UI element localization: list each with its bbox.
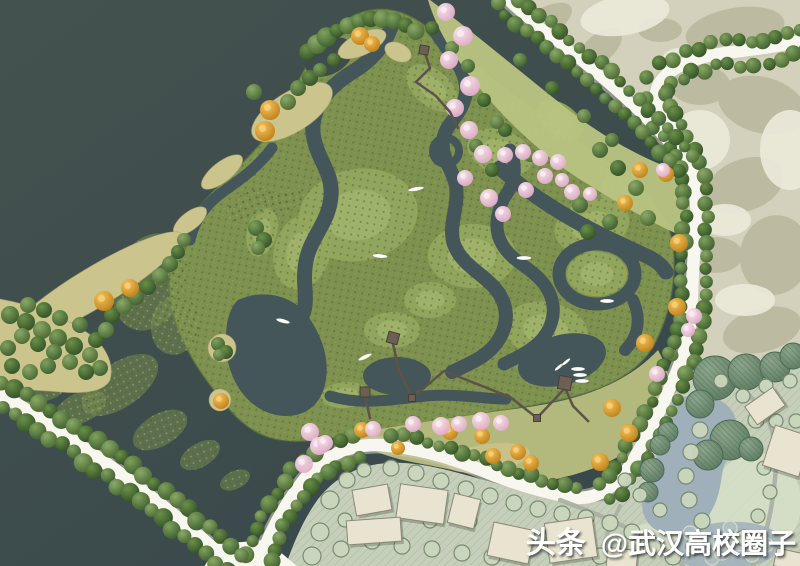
cherry-tree	[476, 416, 482, 422]
street-tree	[697, 196, 712, 211]
street-tree	[680, 210, 693, 223]
island-tree	[14, 328, 30, 344]
street-tree	[41, 431, 58, 448]
street-tree	[340, 456, 356, 472]
cherry-tree	[684, 326, 689, 331]
autumn-tree	[617, 195, 633, 211]
street-tree	[499, 10, 510, 21]
street-tree	[581, 49, 597, 65]
cherry-tree	[457, 170, 473, 186]
autumn-tree	[94, 291, 114, 311]
cherry-tree	[493, 415, 509, 431]
street-tree	[590, 83, 602, 95]
street-tree	[260, 495, 278, 513]
cherry-tree	[532, 150, 548, 166]
autumn-tree	[264, 104, 271, 111]
island-tree	[327, 53, 341, 67]
street-tree	[531, 8, 547, 24]
island-tree	[213, 349, 225, 361]
cherry-tree	[444, 55, 450, 61]
cherry-tree	[496, 418, 502, 424]
street-tree	[409, 430, 424, 445]
autumn-tree	[620, 424, 638, 442]
building-roof	[395, 484, 450, 528]
street-tree	[623, 85, 635, 97]
island-tree	[545, 81, 559, 95]
autumn-tree	[513, 447, 519, 453]
street-tree	[675, 262, 687, 274]
mottle-patch	[715, 284, 775, 316]
cherry-tree	[681, 323, 695, 337]
watermark-handle: @武汉高校圈子	[601, 527, 796, 559]
autumn-tree	[668, 298, 686, 316]
island-tree	[17, 313, 35, 331]
street-tree	[547, 478, 559, 490]
island-tree	[1, 306, 19, 324]
village-tree	[303, 547, 321, 565]
cherry-tree	[553, 157, 559, 163]
autumn-tree	[672, 302, 678, 308]
island-tree	[65, 337, 83, 355]
autumn-tree	[485, 448, 501, 464]
street-tree	[674, 274, 688, 288]
viewing-platform	[360, 387, 370, 397]
island-tree	[577, 109, 591, 123]
street-tree	[272, 531, 286, 545]
cherry-tree	[567, 187, 573, 193]
island-tree	[40, 358, 56, 374]
street-tree	[407, 23, 424, 40]
cherry-tree	[583, 187, 597, 201]
map-canvas: 头条 @武汉高校圈子	[0, 0, 800, 566]
village-tree	[678, 468, 694, 484]
island-tree	[22, 364, 38, 380]
street-tree	[255, 510, 267, 522]
boat	[573, 373, 587, 377]
street-tree	[234, 548, 249, 563]
cherry-tree	[498, 209, 504, 215]
village-tree	[482, 488, 498, 504]
island-tree	[140, 279, 156, 295]
cherry-tree	[652, 369, 658, 375]
island-tree	[580, 224, 596, 240]
street-tree	[676, 196, 690, 210]
viewing-platform	[419, 45, 429, 55]
village-tree	[653, 503, 667, 517]
autumn-tree	[632, 162, 648, 178]
island-tree	[20, 297, 36, 313]
autumn-tree	[523, 455, 539, 471]
viewing-platform	[386, 331, 399, 344]
street-tree	[672, 394, 684, 406]
village-tree	[789, 414, 800, 428]
village-tree	[357, 463, 371, 477]
autumn-tree	[636, 334, 654, 352]
autumn-tree	[510, 444, 526, 460]
island-tree	[62, 354, 78, 370]
village-tree	[433, 473, 449, 489]
cherry-tree	[460, 173, 466, 179]
village-tree	[763, 485, 777, 499]
cherry-tree	[537, 168, 553, 184]
autumn-tree	[364, 36, 380, 52]
village-tree	[339, 472, 355, 488]
cherry-tree	[464, 80, 471, 87]
shrub-mass	[739, 437, 763, 461]
cherry-tree	[474, 145, 492, 163]
street-tree	[700, 250, 713, 263]
village-tree	[618, 473, 632, 487]
street-tree	[746, 36, 758, 48]
village-tree	[321, 491, 339, 509]
island-tree	[4, 358, 20, 374]
street-tree	[557, 477, 573, 493]
street-tree	[277, 474, 294, 491]
street-tree	[734, 61, 747, 74]
street-tree	[781, 26, 795, 40]
island-tree	[246, 84, 262, 100]
street-tree	[444, 441, 458, 455]
channel	[330, 395, 506, 401]
street-tree	[614, 76, 625, 87]
shrub-mass	[640, 458, 664, 482]
autumn-tree	[125, 283, 131, 289]
autumn-tree	[607, 403, 613, 409]
street-tree	[697, 223, 712, 238]
cherry-tree	[558, 176, 563, 181]
cherry-tree	[497, 147, 513, 163]
street-tree	[648, 381, 663, 396]
autumn-tree	[391, 441, 405, 455]
cherry-tree	[480, 189, 498, 207]
island-tree	[72, 317, 88, 333]
cherry-tree	[460, 76, 480, 96]
street-tree	[733, 33, 746, 46]
island-tree	[36, 302, 52, 318]
autumn-tree	[474, 428, 490, 444]
cherry-tree	[484, 193, 490, 199]
village-tree	[554, 506, 570, 522]
cherry-tree	[453, 26, 473, 46]
village-tree	[530, 501, 546, 517]
cherry-tree	[365, 421, 381, 437]
street-tree	[763, 58, 776, 71]
cherry-tree	[495, 206, 511, 222]
street-tree	[697, 64, 713, 80]
cherry-tree	[451, 416, 467, 432]
cherry-tree	[454, 419, 460, 425]
street-tree	[333, 433, 348, 448]
street-tree	[639, 70, 653, 84]
island-tree	[280, 94, 296, 110]
boat	[600, 299, 614, 303]
cherry-tree	[656, 163, 670, 177]
island-tree	[592, 142, 608, 158]
autumn-tree	[216, 396, 222, 402]
autumn-tree	[355, 31, 361, 37]
cherry-tree	[450, 103, 456, 109]
street-tree	[702, 210, 715, 223]
autumn-tree	[394, 444, 399, 449]
cherry-tree	[408, 419, 414, 425]
cherry-tree	[689, 311, 695, 317]
street-tree	[676, 119, 688, 131]
street-tree	[698, 235, 714, 251]
cherry-tree	[457, 30, 464, 37]
autumn-tree	[640, 338, 646, 344]
viewing-platform	[409, 395, 416, 402]
street-tree	[676, 379, 691, 394]
autumn-tree	[260, 100, 280, 120]
cherry-tree	[500, 150, 506, 156]
street-tree	[250, 522, 265, 537]
building-roof	[346, 517, 404, 548]
boat	[571, 367, 585, 371]
cherry-tree	[521, 185, 527, 191]
street-tree	[678, 74, 690, 86]
village-tree	[408, 465, 424, 481]
cherry-tree	[649, 366, 665, 382]
island-tree	[461, 59, 475, 73]
island-tree	[602, 214, 618, 230]
autumn-tree	[603, 399, 621, 417]
cherry-tree	[555, 173, 569, 187]
street-tree	[433, 441, 445, 453]
cherry-tree	[305, 427, 311, 433]
cherry-tree	[464, 125, 470, 131]
autumn-tree	[488, 451, 494, 457]
cherry-tree	[299, 459, 305, 465]
street-tree	[617, 452, 628, 463]
autumn-tree	[674, 238, 680, 244]
island-tree	[628, 180, 644, 196]
cherry-tree	[437, 3, 455, 21]
island-tree	[251, 241, 265, 255]
autumn-tree	[526, 458, 532, 464]
village-tree	[333, 541, 349, 557]
cherry-tree	[540, 171, 546, 177]
cherry-tree	[518, 147, 524, 153]
street-tree	[719, 33, 732, 46]
village-tree	[633, 488, 647, 502]
autumn-tree	[635, 165, 641, 171]
building-roof	[352, 484, 392, 516]
cherry-tree	[564, 184, 580, 200]
watermark: 头条 @武汉高校圈子	[526, 527, 796, 560]
cherry-tree	[317, 435, 333, 451]
street-tree	[599, 93, 610, 104]
island-tree	[82, 347, 98, 363]
island-tree	[92, 360, 108, 376]
village-tree	[311, 523, 329, 541]
island-tree	[49, 329, 67, 347]
shrub-mass	[686, 390, 714, 418]
cherry-tree	[535, 153, 541, 159]
island-tree	[171, 245, 185, 259]
island-tree	[33, 321, 51, 339]
street-tree	[500, 461, 516, 477]
street-tree	[275, 518, 289, 532]
village-tree	[454, 545, 470, 561]
autumn-tree	[591, 453, 609, 471]
autumn-tree	[624, 428, 630, 434]
autumn-tree	[670, 234, 688, 252]
watermark-brand: 头条	[526, 527, 586, 560]
street-tree	[700, 288, 713, 301]
street-tree	[746, 58, 762, 74]
cherry-tree	[550, 154, 566, 170]
island-tree	[485, 163, 499, 177]
autumn-tree	[357, 425, 363, 431]
island-tree	[425, 21, 439, 35]
street-tree	[662, 347, 675, 360]
autumn-tree	[367, 39, 373, 45]
wetland-masterplan-image: 头条 @武汉高校圈子	[0, 0, 800, 566]
street-tree	[665, 52, 681, 68]
street-tree	[677, 365, 693, 381]
cherry-tree	[518, 182, 534, 198]
street-tree	[686, 149, 699, 162]
street-tree	[700, 263, 712, 275]
island-tree	[30, 336, 46, 352]
island-tree	[78, 364, 94, 380]
street-tree	[86, 462, 103, 479]
island-tree	[477, 93, 491, 107]
boat	[517, 256, 532, 260]
cherry-tree	[478, 149, 484, 155]
village-tree	[694, 513, 710, 529]
autumn-tree	[259, 125, 266, 132]
cherry-tree	[432, 417, 450, 435]
village-tree	[681, 492, 697, 508]
boat	[575, 379, 589, 383]
street-tree	[679, 44, 693, 58]
island-tree	[490, 115, 504, 129]
cherry-tree	[659, 166, 664, 171]
street-tree	[692, 42, 707, 57]
village-tree	[692, 422, 708, 438]
street-tree	[697, 168, 713, 184]
cherry-tree	[686, 308, 702, 324]
village-tree	[783, 374, 797, 388]
cherry-tree	[472, 412, 490, 430]
cherry-tree	[295, 455, 313, 473]
viewing-platform	[557, 375, 572, 390]
street-tree	[710, 58, 721, 69]
cherry-tree	[441, 7, 447, 13]
street-tree	[700, 182, 713, 195]
autumn-tree	[595, 457, 601, 463]
village-tree	[506, 495, 522, 511]
island-tree	[513, 53, 527, 67]
island-tree	[52, 310, 68, 326]
street-tree	[563, 35, 574, 46]
autumn-tree	[477, 431, 483, 437]
street-tree	[247, 535, 259, 547]
autumn-tree	[620, 198, 626, 204]
shrub-mass	[650, 435, 670, 455]
street-tree	[652, 56, 667, 71]
village-tree	[714, 374, 728, 388]
island-tree	[98, 322, 114, 338]
village-tree	[683, 444, 699, 460]
cherry-tree	[440, 51, 458, 69]
autumn-tree	[255, 121, 275, 141]
village-tree	[751, 509, 765, 523]
street-tree	[700, 275, 713, 288]
street-tree	[604, 493, 616, 505]
island-tree	[46, 344, 62, 360]
street-tree	[774, 52, 790, 68]
cherry-tree	[368, 424, 374, 430]
street-tree	[672, 164, 686, 178]
village-tree	[736, 389, 750, 403]
cherry-tree	[460, 121, 478, 139]
street-tree	[721, 57, 734, 70]
island-tree	[0, 340, 16, 356]
viewing-platform	[534, 415, 541, 422]
village-tree	[424, 541, 440, 557]
cherry-tree	[405, 416, 421, 432]
autumn-tree	[121, 279, 139, 297]
cherry-tree	[436, 421, 442, 427]
street-tree	[593, 477, 606, 490]
island-tree	[640, 210, 656, 226]
island-tree	[313, 63, 327, 77]
street-tree	[666, 405, 678, 417]
street-tree	[615, 487, 631, 503]
village-tree	[383, 460, 399, 476]
island-tree	[605, 133, 619, 147]
autumn-tree	[98, 295, 105, 302]
autumn-tree	[213, 393, 229, 409]
building-roof	[346, 517, 402, 545]
cherry-tree	[586, 190, 591, 195]
building-roof	[396, 484, 448, 524]
island-tree	[610, 160, 626, 176]
cherry-tree	[446, 99, 464, 117]
cherry-tree	[320, 438, 326, 444]
cherry-tree	[515, 144, 531, 160]
island-tree	[177, 233, 191, 247]
